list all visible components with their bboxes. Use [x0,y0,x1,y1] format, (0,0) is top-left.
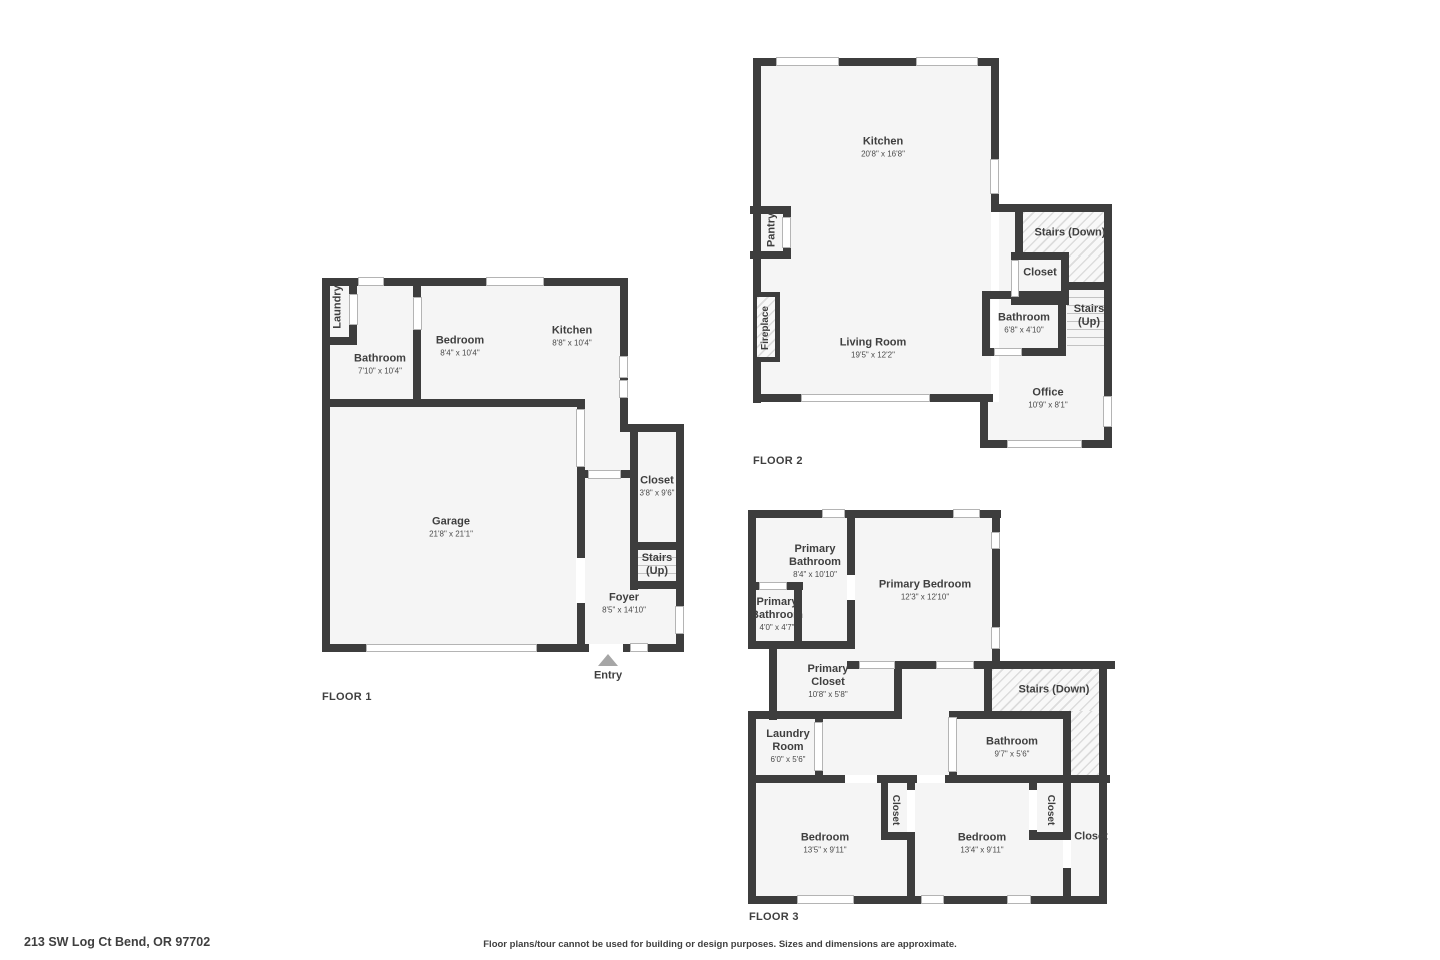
room-dims: 21'8" x 21'1" [429,529,473,538]
room-label-bathroom: Bathroom 9'7" x 5'6" [986,736,1038,759]
room-name: Closet [640,475,675,488]
door-opening [907,790,915,832]
room-name: Bathroom [354,353,406,366]
room-dims: 19'5" x 12'2" [840,350,907,359]
disclaimer-text: Floor plans/tour cannot be used for buil… [0,939,1440,950]
room-label-primary-closet: Primary Closet 10'8" x 5'8" [798,663,858,699]
room-dims: 20'8" x 16'8" [861,149,905,158]
room-label-living-room: Living Room 19'5" x 12'2" [840,337,907,360]
room-label-bathroom: Bathroom 6'8" x 4'10" [998,312,1050,335]
entry-arrow-icon [598,654,618,666]
room-label-closet: Closet [1023,267,1057,280]
floorplan-canvas: Laundry Bathroom 7'10" x 10'4" Bedroom 8… [0,0,1440,960]
wall [982,291,990,356]
door-opening [936,661,974,669]
room-name: Primary Closet [798,663,858,689]
room-name: Garage [429,516,473,529]
garage-door [366,644,537,652]
entry-door-opening [589,644,623,652]
door-opening [845,775,877,783]
window [486,277,544,286]
door-opening [1029,790,1037,830]
wall [1066,282,1112,290]
room-dims: 3'8" x 9'6" [640,488,675,497]
window [953,509,980,518]
room-label-closet: Closet 3'8" x 9'6" [640,475,675,498]
wall [322,278,330,652]
room-dims: 12'3" x 12'10" [879,592,971,601]
room-name: Entry [594,670,622,683]
door-opening [994,348,1022,356]
door-opening [1063,840,1071,868]
room-name: Bedroom [801,832,849,845]
room-label-primary-bathroom: Primary Bathroom 8'4" x 10'10" [779,543,851,579]
floor-1-tag: FLOOR 1 [322,691,372,703]
room-dims: 8'8" x 10'4" [552,338,592,347]
wall [949,711,1071,719]
room-name: Closet [1044,795,1056,826]
window [782,217,791,248]
door-opening [759,582,787,590]
window [822,509,845,518]
window [349,294,358,325]
room-name: Foyer [602,592,646,605]
wall [769,649,777,720]
room-name: Primary Bedroom [879,579,971,592]
window [921,895,944,904]
wall [984,669,992,713]
room-dims: 8'4" x 10'10" [779,570,851,579]
room-name: Living Room [840,337,907,350]
room-label-garage: Garage 21'8" x 21'1" [429,516,473,539]
stairs-down-hatch [1069,256,1104,282]
room-label-primary-bathroom-small: Primary Bathroom 4'0" x 4'7" [742,596,812,632]
fireplace-wall [775,292,780,362]
room-name: Bedroom [436,335,484,348]
door-opening [576,409,585,467]
room-dims: 6'0" x 5'6" [761,755,816,764]
room-dims: 7'10" x 10'4" [354,366,406,375]
room-dims: 9'7" x 5'6" [986,749,1038,758]
room-label-primary-bedroom: Primary Bedroom 12'3" x 12'10" [879,579,971,602]
window [990,159,999,194]
room-name: Bathroom [986,736,1038,749]
room-name: Bathroom [998,312,1050,325]
room-dims: 13'4" x 9'11" [958,845,1006,854]
window [797,895,854,904]
room-name: Closet [1023,267,1057,280]
wall [322,399,585,407]
wall [1058,291,1066,356]
room-name: Fireplace [760,306,772,350]
room-label-kitchen: Kitchen 8'8" x 10'4" [552,325,592,348]
room-label-stairs-down: Stairs (Down) [1035,227,1106,240]
room-label-pantry: Pantry [766,213,779,247]
wall [1099,661,1107,904]
window [675,606,684,634]
room-name: Laundry [332,285,345,328]
room-label-bathroom: Bathroom 7'10" x 10'4" [354,353,406,376]
door-opening [588,470,621,479]
room-label-laundry: Laundry [332,285,345,328]
room-name: Closet [889,795,901,826]
window [991,627,1000,649]
door-opening [1011,260,1019,297]
wall [620,278,628,428]
room-name: Primary Bathroom [779,543,851,569]
window [1007,440,1082,448]
room-dims: 10'9" x 8'1" [1028,400,1067,409]
wall [982,291,1066,299]
room-name: Stairs [642,552,673,565]
room-name: Bedroom [958,832,1006,845]
room-name: Stairs (Down) [1019,684,1090,697]
wall [748,711,756,904]
wall [907,840,915,904]
room-label-stairs-down: Stairs (Down) [1019,684,1090,697]
room-label-bedroom-left: Bedroom 13'5" x 9'11" [801,832,849,855]
room-label-closet-mid: Closet [889,795,901,826]
window [630,643,648,652]
wall [881,832,915,840]
wall [1029,832,1071,840]
room-label-stairs-up: Stairs (Up) [1074,303,1105,329]
room-name-sub: (Up) [1074,316,1105,329]
room-name: Kitchen [552,325,592,338]
wall [630,542,684,550]
room-name: Stairs (Down) [1035,227,1106,240]
room-dims: 10'8" x 5'8" [798,690,858,699]
door-opening [413,297,422,330]
window [619,380,628,398]
room-label-bedroom: Bedroom 8'4" x 10'4" [436,335,484,358]
door-opening [859,661,895,669]
wall [630,424,638,590]
room-label-foyer: Foyer 8'5" x 14'10" [602,592,646,615]
room-dims: 6'8" x 4'10" [998,325,1050,334]
room-label-closet-right: Closet [1044,795,1056,826]
room-dims: 8'5" x 14'10" [602,605,646,614]
door-opening [948,717,957,772]
room-name: Office [1028,387,1067,400]
window [991,532,1000,549]
room-name: Kitchen [861,136,905,149]
room-name: Primary Bathroom [742,596,812,622]
room-dims: 4'0" x 4'7" [742,623,812,632]
window [1103,396,1112,427]
window [619,356,628,378]
room-name: Laundry Room [761,728,816,754]
room-name: Closet [1074,831,1108,844]
wall [322,337,357,345]
floor-3-tag: FLOOR 3 [749,911,799,923]
room-label-fireplace: Fireplace [760,306,772,350]
room-label-bedroom-right: Bedroom 13'4" x 9'11" [958,832,1006,855]
window [916,57,978,66]
room-label-laundry-room: Laundry Room 6'0" x 5'6" [761,728,816,764]
room-dims: 13'5" x 9'11" [801,845,849,854]
room-label-closet-far: Closet [1074,831,1108,844]
room-name-sub: (Up) [642,565,673,578]
window [776,57,839,66]
wall [748,711,901,719]
entry-label: Entry [594,670,622,683]
room-label-office: Office 10'9" x 8'1" [1028,387,1067,410]
door-opening [917,775,945,783]
wall [1015,204,1023,256]
wall [1063,711,1071,904]
wall [750,251,791,259]
wall [630,581,684,589]
window [358,277,384,286]
room-label-stairs-up: Stairs (Up) [642,552,673,578]
room-label-kitchen: Kitchen 20'8" x 16'8" [861,136,905,159]
floor-2-tag: FLOOR 2 [753,455,803,467]
door-opening [576,558,585,603]
window [1007,895,1031,904]
fireplace-wall [753,357,780,362]
floor-area [988,402,999,440]
room-name: Stairs [1074,303,1105,316]
room-name: Pantry [766,213,779,247]
room-dims: 8'4" x 10'4" [436,348,484,357]
wall [991,204,1112,212]
window [801,394,930,402]
